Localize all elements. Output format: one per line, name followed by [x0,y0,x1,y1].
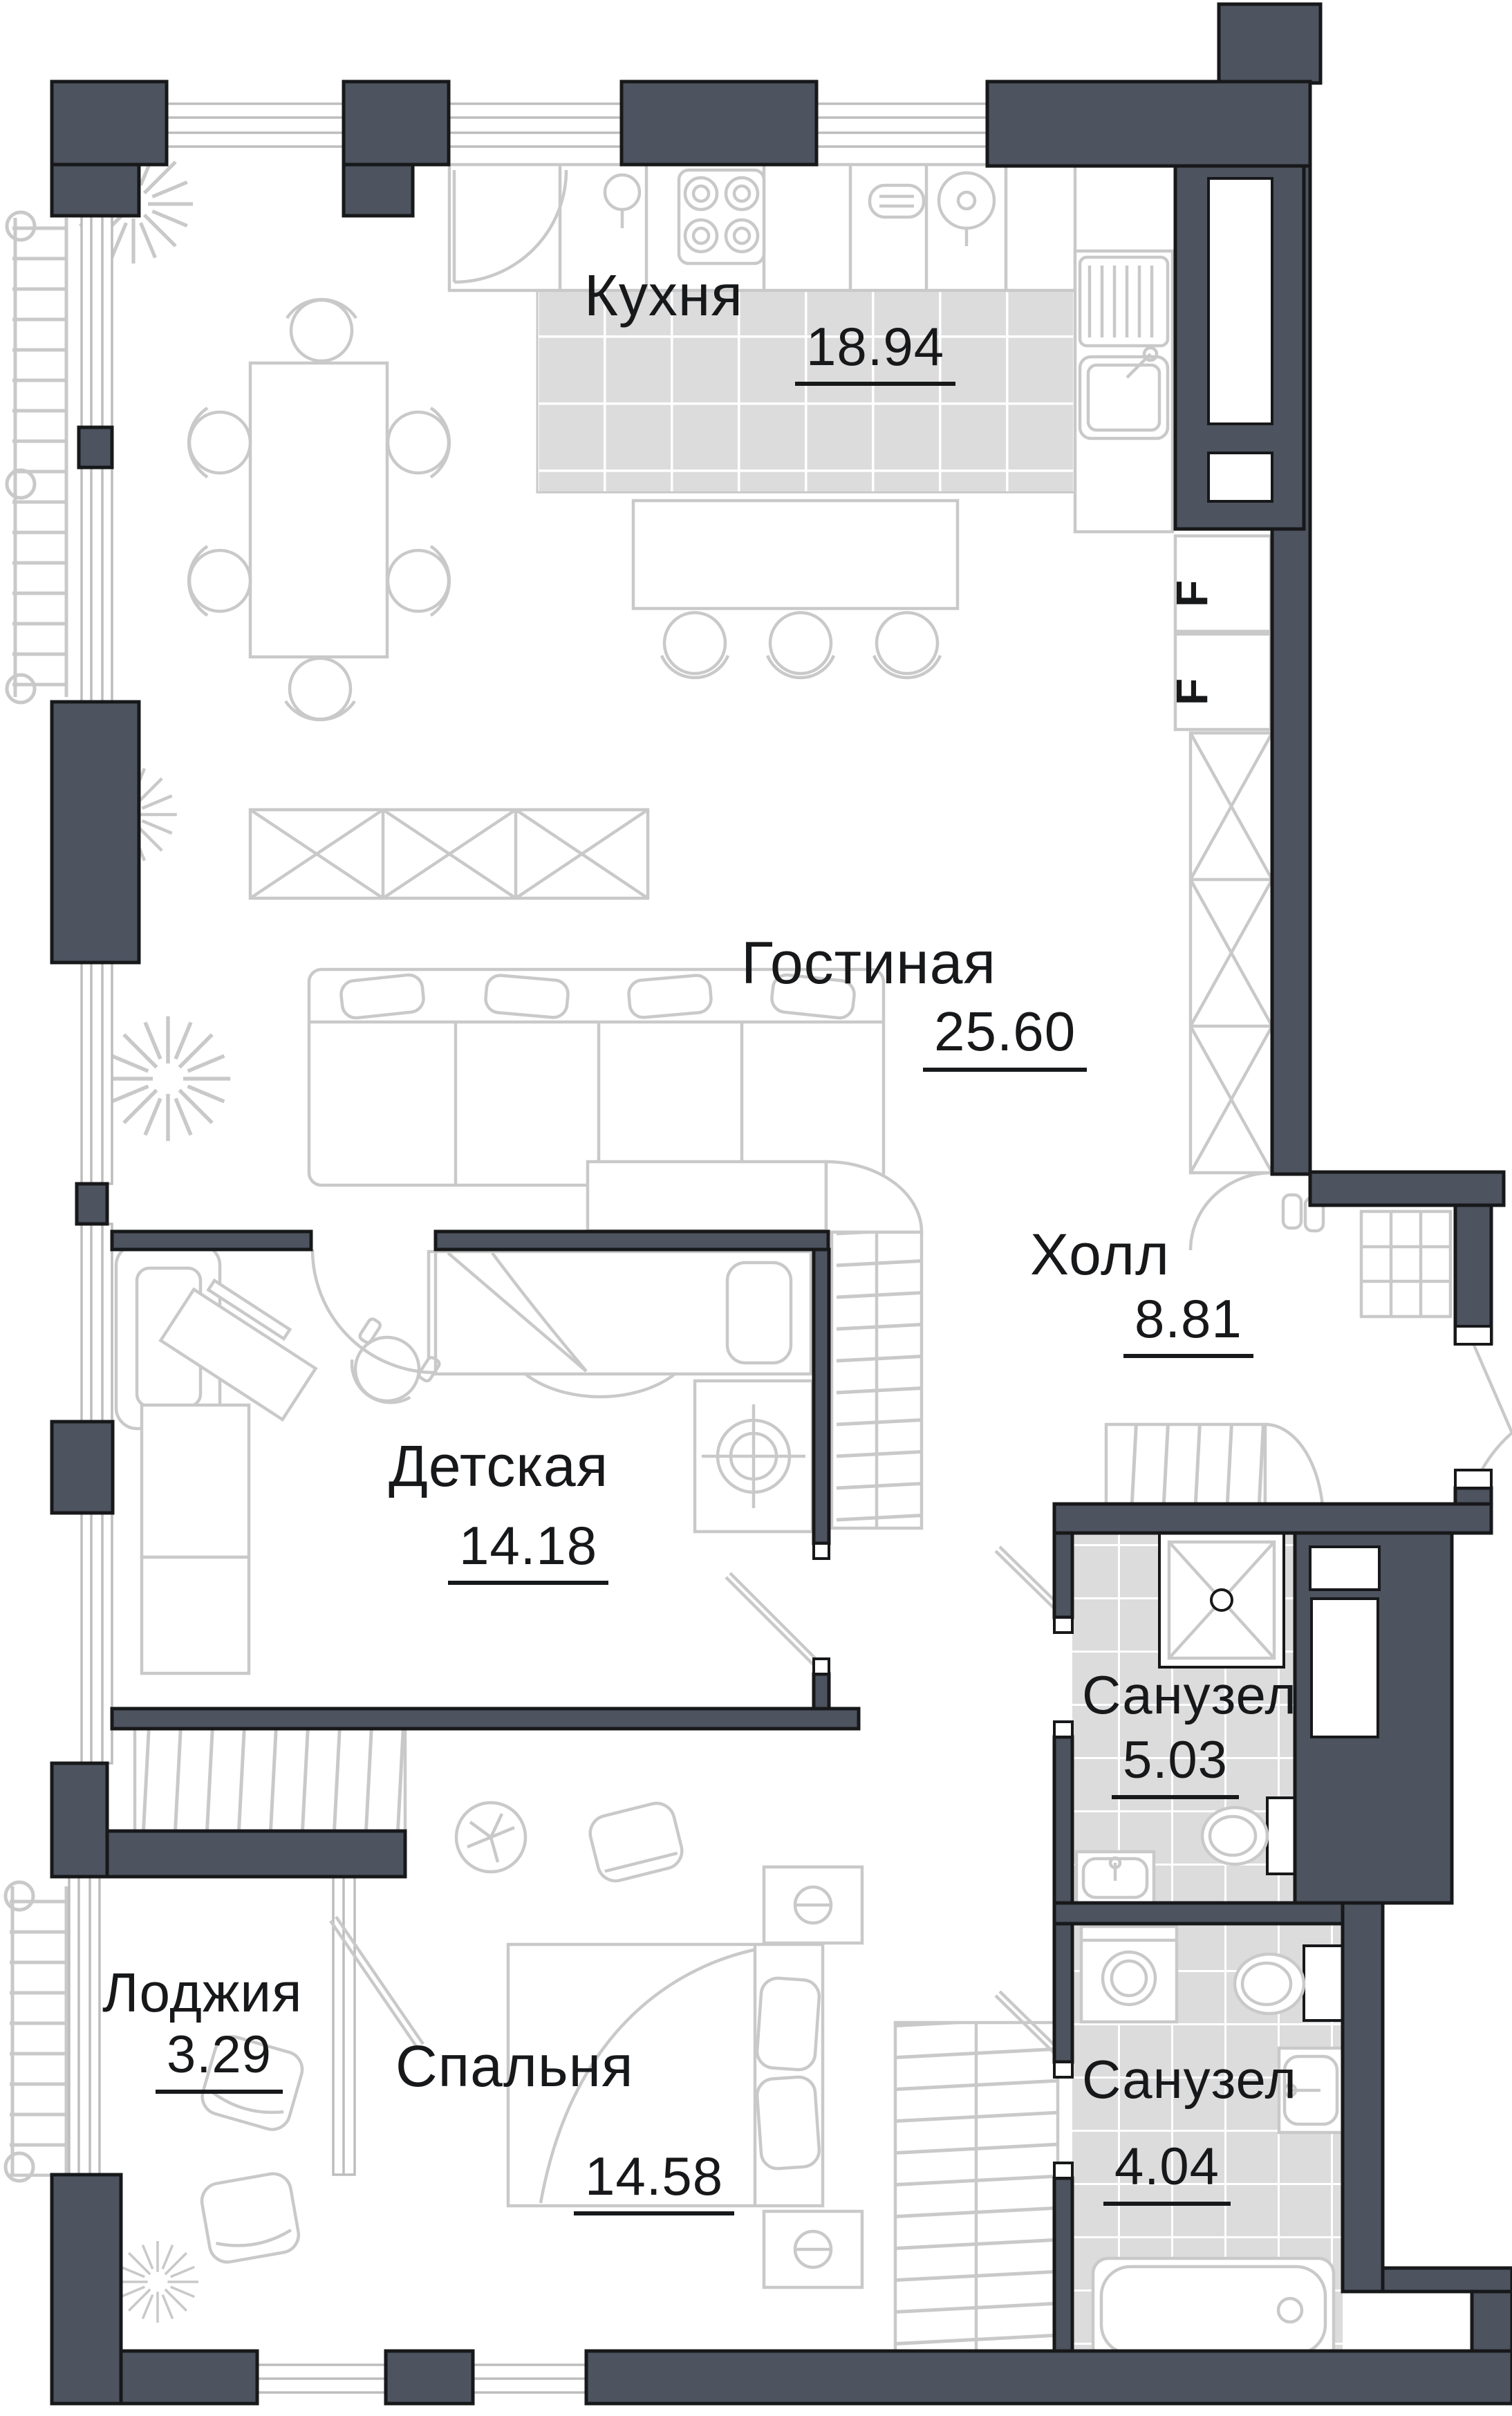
room-label-bathroom-2: Санузел [1082,2052,1297,2106]
ceiling-fan-icon [456,1803,525,1872]
hall-sideboard [588,1162,922,1232]
loggia-chair [199,2171,301,2265]
plant-icon [106,1016,230,1141]
entry-bench [1361,1211,1450,1317]
balcony-railing-upper [7,212,68,703]
tv-cabinet [250,810,648,898]
children-cabinet [142,1557,249,1673]
room-area-bathroom-2: 4.04 [1103,2141,1231,2206]
sofa [309,969,884,1185]
balcony-railing-lower [6,1882,69,2181]
shower [1159,1533,1284,1667]
floor-plan: F F [0,0,1512,2416]
room-label-hall: Холл [1030,1225,1170,1283]
room-area-children: 14.18 [448,1518,608,1585]
desk-chair [335,1317,440,1419]
bedroom-closet-strip [135,1729,405,1831]
room-area-kitchen: 18.94 [795,319,955,386]
room-area-bedroom: 14.58 [574,2149,734,2215]
room-label-bathroom-1: Санузел [1082,1668,1297,1722]
nightstand [764,2211,862,2287]
kitchen-sink-cabinet [1075,251,1173,532]
small-appliance-icon [870,185,924,217]
children-cabinet [142,1405,249,1557]
bathtub [1093,2258,1334,2362]
room-label-children: Детская [389,1437,608,1495]
washing-machine [1081,1926,1177,2022]
room-area-loggia: 3.29 [156,2029,283,2094]
bathroom-sink [1076,1852,1154,1903]
room-area-hall: 8.81 [1123,1292,1253,1358]
room-label-living: Гостиная [741,933,996,993]
fridge: F F [1167,536,1271,730]
room-label-loggia: Лоджия [102,1965,302,2020]
room-label-bedroom: Спальня [395,2037,634,2095]
fridge-mark-1: F [1167,580,1217,607]
room-area-bathroom-1: 5.03 [1112,1734,1239,1799]
plant-icon [117,2241,198,2323]
bedroom-chair [586,1799,686,1884]
kitchen-counter [449,165,1075,290]
fridge-mark-2: F [1167,678,1217,705]
bedroom-wardrobe [895,2023,1058,2361]
kitchen-island [633,501,958,678]
nightstand [764,1867,862,1943]
play-rug [695,1381,812,1532]
hall-closet [832,1232,922,1528]
room-area-living: 25.60 [923,1004,1087,1072]
room-label-kitchen: Кухня [584,266,743,324]
dining-table-set [189,299,449,720]
hall-wardrobe-tall [1191,733,1272,1250]
slippers-icon [1283,1195,1301,1228]
children-bed [429,1252,811,1374]
